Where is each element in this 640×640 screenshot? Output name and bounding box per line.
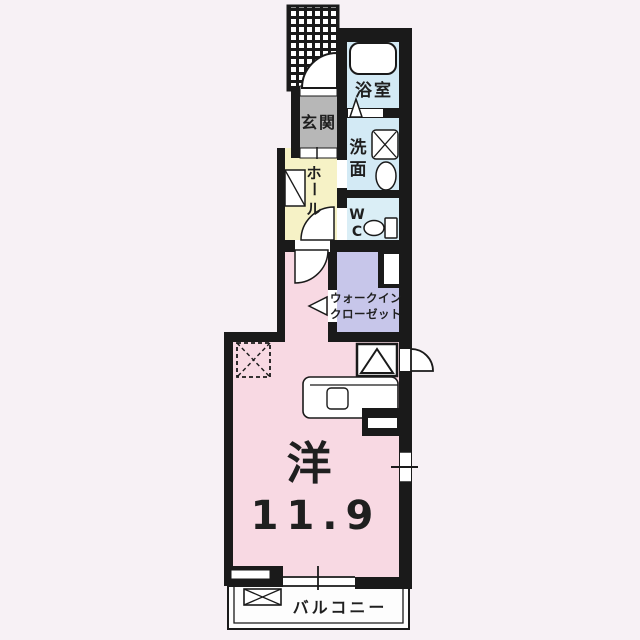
pipe-space-niche bbox=[384, 254, 399, 284]
floor-plan: 浴室 洗 面 W C 玄関 ホ ー ル ウォークイン クローゼット 洋 11.9… bbox=[0, 0, 640, 640]
wc-label-line1: W bbox=[349, 207, 364, 223]
washroom-label-char2: 面 bbox=[350, 160, 369, 180]
genkan-step-lower bbox=[300, 148, 337, 158]
kitchen-side-notch bbox=[368, 418, 397, 428]
shoe-cabinet bbox=[285, 170, 305, 206]
living-room-size: 11.9 bbox=[251, 493, 382, 539]
bath-label: 浴室 bbox=[355, 80, 393, 101]
living-room-label: 洋 bbox=[286, 437, 333, 490]
washroom-door-gap bbox=[337, 160, 347, 188]
kitchen-sink bbox=[327, 388, 348, 409]
balcony-label: バルコニー bbox=[293, 598, 388, 617]
washer-space-indoor bbox=[372, 130, 398, 159]
genkan-label: 玄関 bbox=[301, 113, 337, 132]
washroom-label-char1: 洗 bbox=[350, 137, 369, 158]
wc-door-gap bbox=[337, 208, 347, 240]
meter-box-doorway-gap bbox=[400, 349, 411, 371]
hall-label-char2: ー bbox=[305, 181, 323, 196]
closet-label-line2: クローゼット bbox=[330, 307, 402, 321]
bathtub bbox=[350, 43, 396, 74]
closet-label-line1: ウォークイン bbox=[330, 291, 402, 305]
low-window bbox=[231, 570, 270, 579]
basin bbox=[376, 162, 396, 190]
wc-label-line2: C bbox=[352, 224, 362, 240]
washer-space-balcony bbox=[244, 589, 281, 605]
hall-label-char1: ホ bbox=[306, 164, 321, 182]
water-heater bbox=[357, 344, 397, 376]
hall-label-char3: ル bbox=[306, 200, 321, 218]
